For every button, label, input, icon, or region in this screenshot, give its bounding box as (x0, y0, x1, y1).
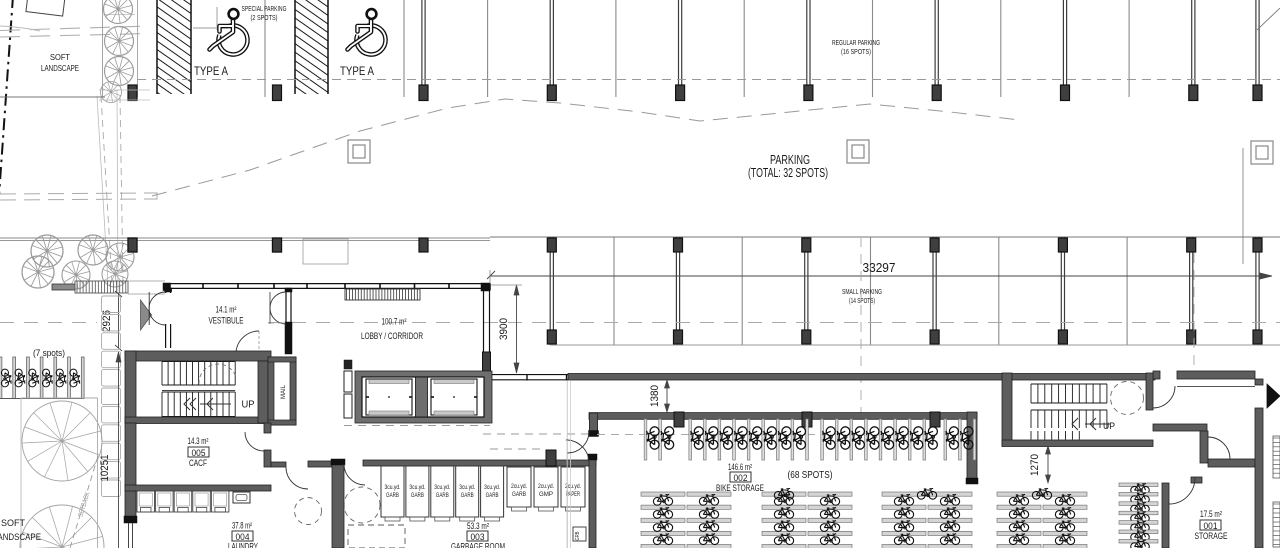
svg-text:GARB: GARB (512, 492, 526, 498)
svg-text:3cu.yd.: 3cu.yd. (385, 485, 401, 491)
svg-text:MAIL: MAIL (280, 385, 287, 399)
svg-text:LOBBY / CORRIDOR: LOBBY / CORRIDOR (361, 331, 423, 341)
svg-text:3900: 3900 (498, 318, 510, 340)
svg-text:TYPE A: TYPE A (194, 64, 228, 78)
svg-text:LANDSCAPE: LANDSCAPE (41, 63, 79, 73)
svg-text:146.6 m²: 146.6 m² (728, 462, 752, 472)
svg-text:PARKING: PARKING (770, 153, 810, 167)
svg-text:002: 002 (734, 473, 748, 483)
svg-text:001: 001 (1204, 521, 1218, 531)
svg-text:BIKE STORAGE: BIKE STORAGE (716, 483, 764, 493)
svg-text:GMP: GMP (539, 492, 553, 498)
svg-text:TYPE A: TYPE A (340, 64, 374, 78)
svg-text:GARB: GARB (411, 493, 424, 499)
svg-text:SOFT: SOFT (50, 52, 70, 62)
svg-text:33297: 33297 (863, 261, 896, 275)
svg-text:004: 004 (236, 532, 250, 542)
svg-text:SMALL PARKING: SMALL PARKING (842, 287, 882, 296)
svg-text:17.5 m²: 17.5 m² (1200, 509, 1222, 519)
svg-text:10251: 10251 (99, 455, 111, 482)
svg-text:2cu.yd.: 2cu.yd. (538, 484, 554, 490)
svg-text:3cu.yd.: 3cu.yd. (434, 485, 450, 491)
svg-text:VESTIBULE: VESTIBULE (209, 316, 244, 326)
svg-text:1270: 1270 (1029, 454, 1041, 476)
svg-text:GARBAGE ROOM: GARBAGE ROOM (451, 542, 505, 548)
svg-text:(TOTAL: 32 SPOTS): (TOTAL: 32 SPOTS) (748, 166, 828, 180)
svg-text:14.1 m²: 14.1 m² (216, 305, 237, 315)
svg-text:GARB: GARB (386, 493, 399, 499)
svg-text:LAUNDRY: LAUNDRY (228, 542, 258, 548)
svg-text:003: 003 (471, 532, 485, 542)
svg-text:GARB: GARB (436, 493, 449, 499)
svg-text:GRB: GRB (575, 531, 581, 540)
svg-text:GARB: GARB (486, 493, 499, 499)
svg-text:100.7 m²: 100.7 m² (382, 317, 407, 327)
svg-text:3cu.yd.: 3cu.yd. (459, 485, 475, 491)
svg-text:3cu.yd.: 3cu.yd. (484, 485, 500, 491)
svg-text:SPECIAL PARKING: SPECIAL PARKING (242, 4, 287, 13)
svg-text:37.8 m²: 37.8 m² (232, 521, 252, 531)
svg-text:SOFT: SOFT (1, 518, 25, 529)
svg-text:(68 SPOTS): (68 SPOTS) (788, 470, 833, 481)
svg-text:2926: 2926 (101, 310, 113, 332)
svg-text:PAPER: PAPER (566, 492, 580, 498)
svg-text:2cu.yd.: 2cu.yd. (511, 484, 527, 490)
svg-text:REGULAR PARKING: REGULAR PARKING (832, 38, 880, 47)
svg-text:(2 SPOTS): (2 SPOTS) (251, 13, 278, 22)
svg-text:UP: UP (242, 400, 255, 411)
svg-text:(7 spots): (7 spots) (33, 348, 65, 358)
svg-text:14.3 m²: 14.3 m² (188, 436, 209, 446)
svg-text:(14 SPOTS): (14 SPOTS) (849, 296, 875, 305)
svg-text:CACF: CACF (189, 458, 207, 468)
svg-text:GARB: GARB (461, 493, 474, 499)
svg-text:53.3 m²: 53.3 m² (467, 521, 489, 531)
svg-text:1380: 1380 (649, 385, 661, 407)
svg-text:STORAGE: STORAGE (1195, 531, 1228, 541)
svg-text:3cu.yd.: 3cu.yd. (409, 485, 425, 491)
svg-text:UP: UP (1103, 421, 1115, 432)
svg-text:LANDSCAPE: LANDSCAPE (0, 532, 41, 543)
svg-text:(16 SPOTS): (16 SPOTS) (841, 47, 871, 56)
svg-text:005: 005 (192, 448, 206, 458)
